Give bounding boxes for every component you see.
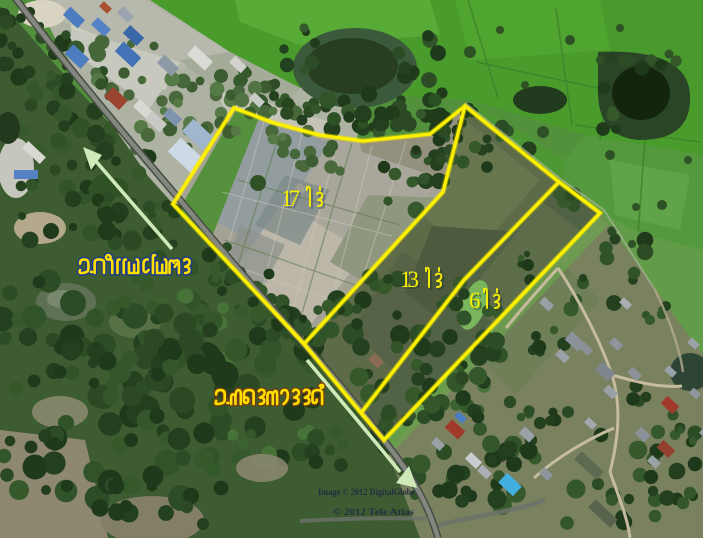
- svg-text:13: 13: [400, 267, 419, 292]
- svg-text:© 2012 Tele Atlas: © 2012 Tele Atlas: [333, 507, 415, 517]
- svg-text:17: 17: [281, 186, 300, 211]
- svg-text:6: 6: [469, 288, 481, 313]
- svg-text:Image © 2012 DigitalGlobe: Image © 2012 DigitalGlobe: [318, 487, 415, 497]
